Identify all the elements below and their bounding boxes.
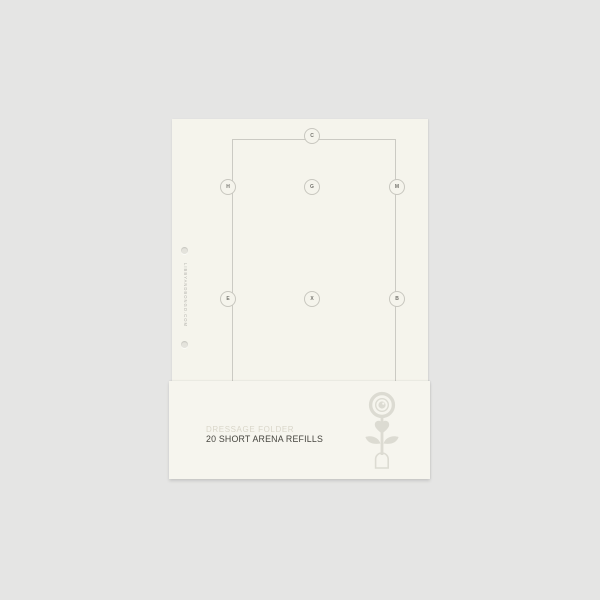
flower-leaf-left xyxy=(365,436,380,444)
arena-marker-letter: G xyxy=(310,184,314,190)
arena-marker-letter: B xyxy=(395,296,399,302)
arena-marker-b: B xyxy=(389,291,405,307)
band-title: 20 SHORT ARENA REFILLS xyxy=(206,434,323,444)
arena-marker-h: H xyxy=(220,179,236,195)
binder-hole-bottom xyxy=(181,341,188,348)
flower-bloom-highlight xyxy=(382,403,384,405)
arena-marker-letter: M xyxy=(395,184,399,190)
arena-marker-x: X xyxy=(304,291,320,307)
arena-marker-letter: C xyxy=(310,133,314,139)
flower-bloom-center xyxy=(378,401,385,408)
binder-hole-top xyxy=(181,247,188,254)
arena-marker-g: G xyxy=(304,179,320,195)
flower-leaf-right xyxy=(384,436,399,444)
product-photo: C H G M E X B LIBBYANDBONGO.COM DRESSAGE… xyxy=(0,0,600,600)
arena-marker-e: E xyxy=(220,291,236,307)
band-series-label: DRESSAGE FOLDER xyxy=(206,425,294,434)
product-band: DRESSAGE FOLDER 20 SHORT ARENA REFILLS xyxy=(169,381,430,479)
spine-url: LIBBYANDBONGO.COM xyxy=(182,255,188,335)
arena-marker-letter: E xyxy=(226,296,229,302)
arena-marker-m: M xyxy=(389,179,405,195)
arena-marker-letter: X xyxy=(310,296,313,302)
flower-logo-icon xyxy=(352,381,412,473)
flower-pot xyxy=(376,453,389,468)
arena-marker-c: C xyxy=(304,128,320,144)
arena-marker-letter: H xyxy=(226,184,230,190)
